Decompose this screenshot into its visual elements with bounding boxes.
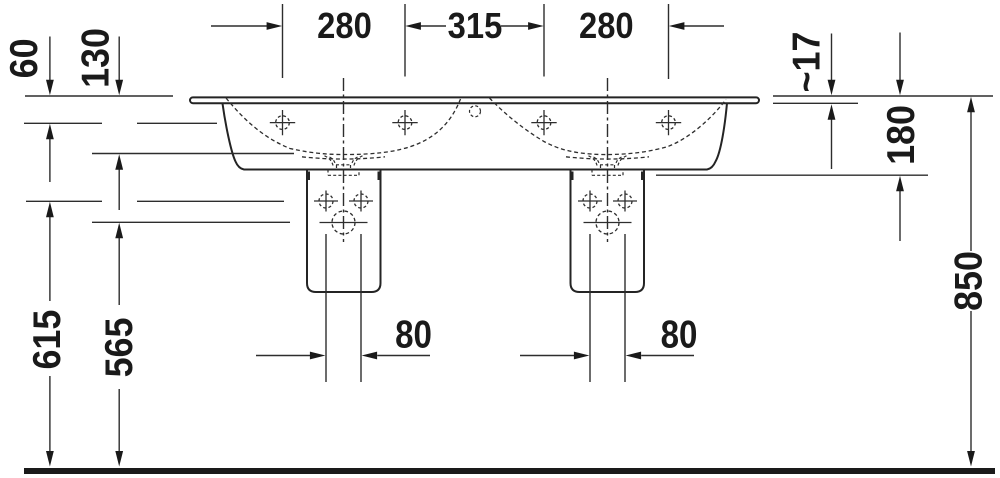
svg-text:80: 80 — [661, 313, 698, 356]
svg-text:~17: ~17 — [784, 32, 828, 93]
svg-text:280: 280 — [579, 7, 634, 47]
svg-text:565: 565 — [97, 318, 141, 378]
svg-text:850: 850 — [946, 251, 990, 311]
svg-text:615: 615 — [25, 310, 69, 370]
svg-text:130: 130 — [73, 28, 117, 88]
svg-text:60: 60 — [2, 38, 46, 78]
svg-text:315: 315 — [448, 7, 503, 47]
svg-text:80: 80 — [395, 313, 432, 356]
svg-text:280: 280 — [317, 7, 372, 47]
svg-text:180: 180 — [879, 105, 923, 165]
